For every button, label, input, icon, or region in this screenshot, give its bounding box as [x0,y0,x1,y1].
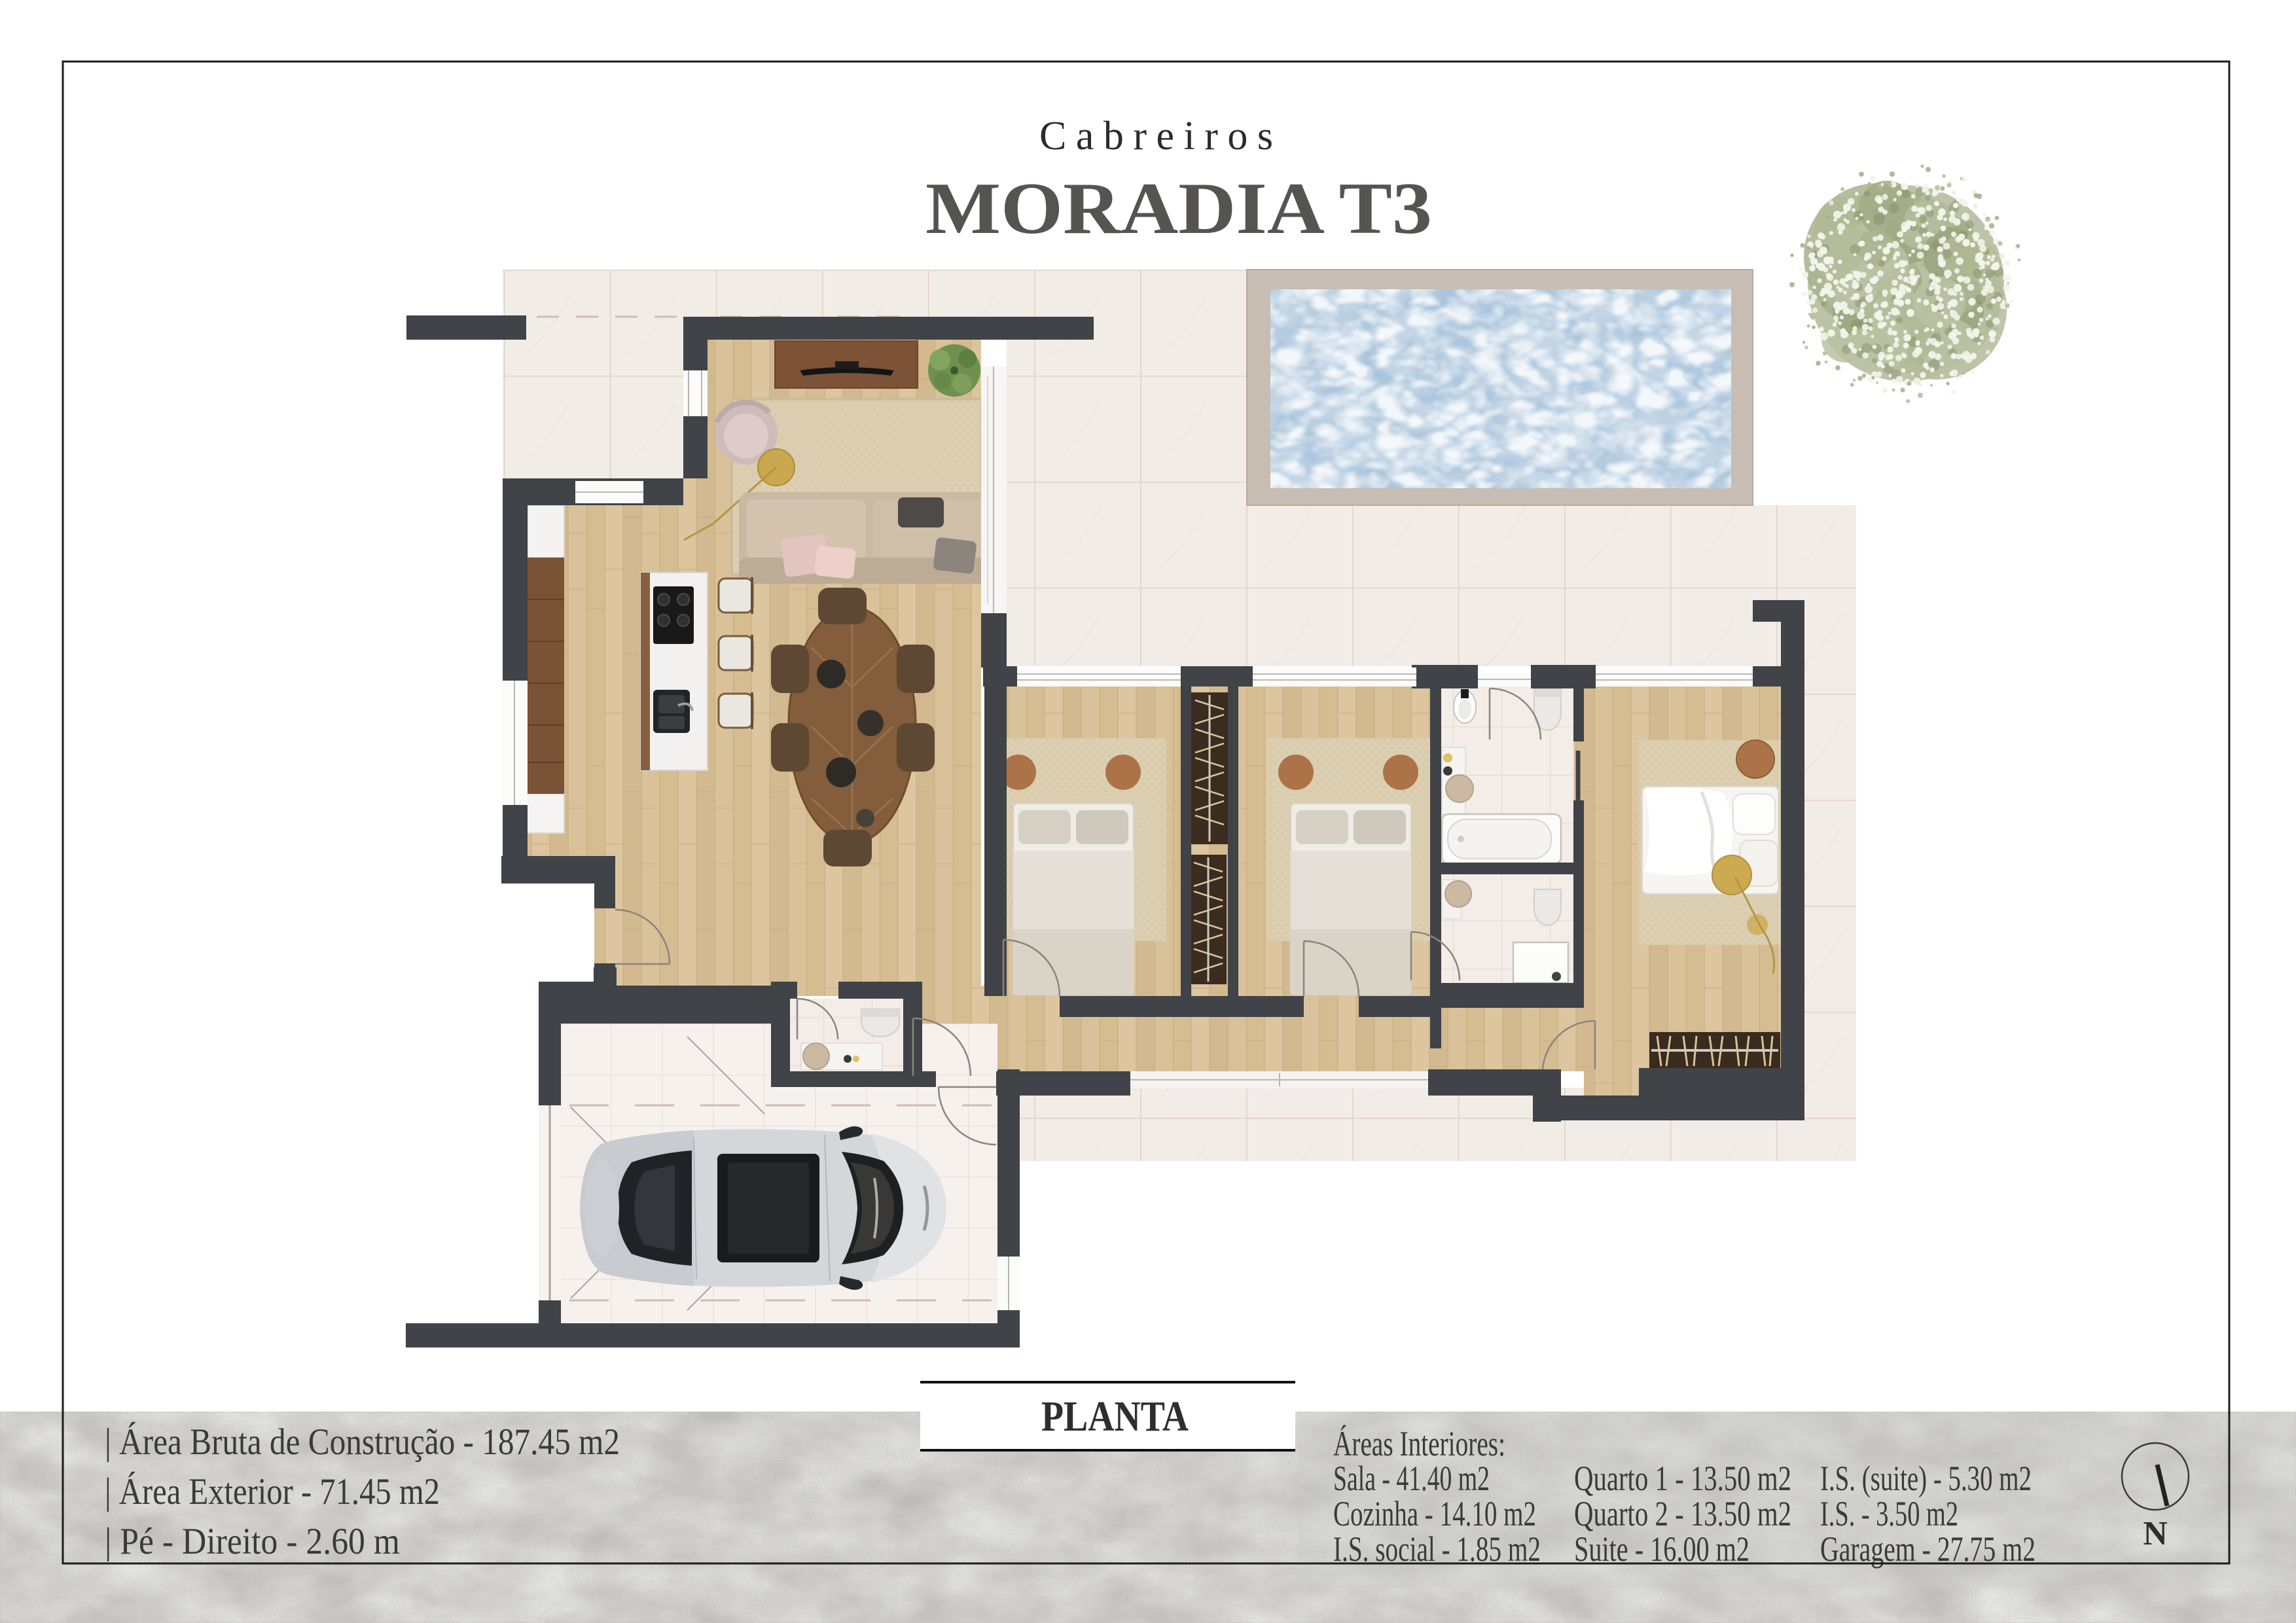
svg-text:| Pé - Direito - 2.60 m: | Pé - Direito - 2.60 m [105,1521,400,1562]
svg-text:PLANTA: PLANTA [1041,1393,1189,1440]
svg-text:N: N [2143,1515,2168,1552]
svg-text:Quarto 1 - 13.50 m2: Quarto 1 - 13.50 m2 [1574,1459,1791,1498]
svg-text:Cozinha - 14.10 m2: Cozinha - 14.10 m2 [1333,1494,1536,1533]
svg-text:| Área Bruta de Construção - 1: | Área Bruta de Construção - 187.45 m2 [105,1421,620,1463]
svg-text:I.S. (suite) - 5.30 m2: I.S. (suite) - 5.30 m2 [1820,1459,2032,1498]
svg-text:MORADIA T3: MORADIA T3 [925,168,1432,249]
svg-text:Quarto 2 - 13.50 m2: Quarto 2 - 13.50 m2 [1574,1494,1791,1533]
svg-text:Áreas Interiores:: Áreas Interiores: [1333,1424,1505,1463]
svg-text:I.S. - 3.50 m2: I.S. - 3.50 m2 [1820,1494,1958,1533]
svg-text:Sala - 41.40 m2: Sala - 41.40 m2 [1333,1459,1490,1498]
svg-text:| Área Exterior - 71.45 m2: | Área Exterior - 71.45 m2 [105,1471,440,1512]
